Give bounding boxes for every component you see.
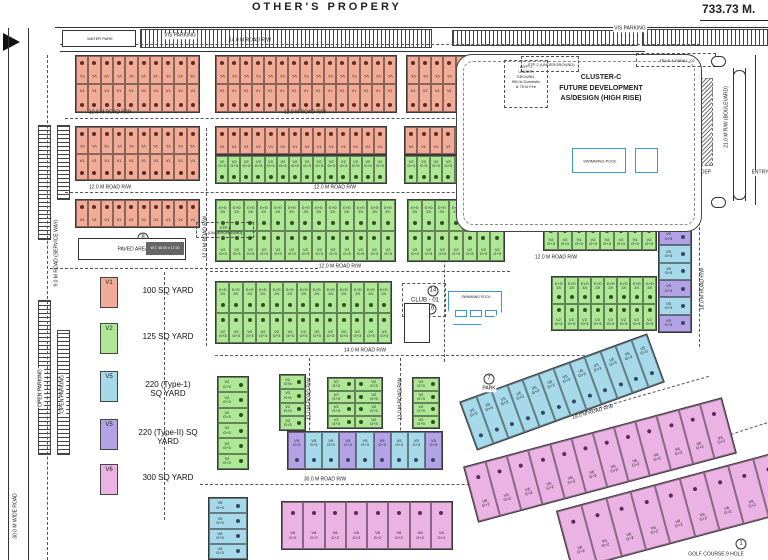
- plot-cell: V1: [324, 84, 336, 112]
- plot-code: V1: [329, 145, 334, 149]
- plot-code: V2G+3: [219, 287, 227, 295]
- plot-cell: V1: [431, 56, 443, 84]
- area-label: VIS PARKING: [613, 26, 647, 32]
- plot-cell: V1: [88, 56, 100, 84]
- plot-code: V2G+3: [223, 426, 231, 434]
- plot-code: V1: [232, 89, 237, 93]
- plot-cell: V1: [113, 84, 125, 112]
- plot-cell: V1: [101, 200, 113, 227]
- plot-marker-icon: [386, 236, 390, 240]
- plot-marker-icon: [92, 103, 96, 107]
- plot-marker-icon: [129, 61, 133, 65]
- plot-marker-icon: [603, 388, 608, 393]
- club-pool-label: SWIMMING POOL: [461, 296, 490, 300]
- plot-code: V6G+2: [652, 453, 662, 463]
- plot-marker-icon: [166, 132, 170, 136]
- plot-marker-icon: [244, 132, 248, 136]
- plot-marker-icon: [431, 382, 435, 386]
- plot-cell: V5G+3: [659, 315, 691, 332]
- plot-block: V6G+2V6G+2V6G+2V6G+2V6G+2V6G+2V6G+2V6G+2: [281, 501, 453, 550]
- plot-cell: V6G+2: [282, 502, 303, 549]
- plot-code: V2G+3: [452, 248, 460, 256]
- plot-cell: V1: [362, 127, 374, 154]
- plot-code: V2G+3: [357, 248, 365, 256]
- plot-marker-icon: [191, 103, 195, 107]
- plot-cell: V5G+3: [659, 263, 691, 280]
- traffic-island-top: [711, 56, 726, 67]
- plot-cell: V2G+3: [229, 282, 242, 313]
- plot-cell: V1: [276, 56, 288, 84]
- plot-code: V2G+3: [302, 205, 310, 213]
- plot-marker-icon: [378, 132, 382, 136]
- plot-code: V1: [232, 74, 237, 78]
- plot-cell: V1: [228, 56, 240, 84]
- plot-code: V2G+3: [561, 238, 569, 246]
- plot-code: V2G+3: [243, 160, 251, 168]
- plot-marker-icon: [280, 103, 284, 107]
- water-tank-dim: W.T. 48.00 x 17.00: [151, 247, 180, 251]
- plot-marker-icon: [422, 132, 426, 136]
- plot-marker-icon: [244, 175, 248, 179]
- plot-block: V5G+3V5G+3V5G+3V5G+3V5G+3V5G+3: [658, 227, 692, 333]
- plot-cell: V2G+3: [578, 304, 591, 331]
- plot-cell: V2G+3: [243, 313, 256, 344]
- plot-marker-icon: [440, 221, 444, 225]
- plot-code: V2G+3: [233, 248, 241, 256]
- plot-code: V6G+2: [673, 447, 683, 457]
- plot-code: V2G+3: [279, 160, 287, 168]
- legend-code: V5: [101, 422, 117, 428]
- stp1-line2: (UNDERGROUND): [197, 230, 253, 235]
- plot-code: V2G+3: [594, 318, 602, 326]
- dimension-line: [700, 20, 768, 21]
- plot-cell: V2G+3: [405, 156, 417, 183]
- plot-code: V1: [117, 74, 122, 78]
- plot-cell: V2G+3: [364, 313, 377, 344]
- plot-marker-icon: [281, 175, 285, 179]
- plot-code: V1: [447, 74, 452, 78]
- plot-cell: V2G+3: [565, 277, 578, 304]
- plot-marker-icon: [329, 458, 333, 462]
- plot-code: V6G+2: [625, 532, 635, 542]
- plot-code: V1: [328, 74, 333, 78]
- plot-code: V2G+3: [417, 393, 425, 401]
- plot-code: V2G+3: [364, 160, 372, 168]
- road-centerline: [65, 192, 510, 193]
- plot-marker-icon: [609, 308, 613, 312]
- plot-cell: V2G+3: [340, 200, 354, 231]
- plot-marker-icon: [556, 405, 561, 410]
- plot-cell: V1: [76, 200, 88, 227]
- plot-code: V1: [423, 74, 428, 78]
- plot-cell: V2G+3: [413, 416, 439, 429]
- plot-code: V1: [220, 74, 225, 78]
- plot-code: V2G+3: [259, 287, 267, 295]
- plot-code: V1: [166, 159, 171, 163]
- plot-code: V1: [352, 74, 357, 78]
- plot-marker-icon: [681, 252, 685, 256]
- plot-cell: V1: [240, 84, 252, 112]
- plot-marker-icon: [347, 420, 351, 424]
- plot-cell: V2G+3: [643, 304, 656, 331]
- plot-code: V2G+3: [274, 248, 282, 256]
- plot-cell: V2G+3: [463, 231, 477, 262]
- plot-marker-icon: [669, 423, 674, 428]
- plot-cell: V2G+3: [270, 282, 283, 313]
- plot-code: V2G+3: [633, 318, 641, 326]
- plot-cell: V5G+3: [391, 432, 408, 469]
- plot-cell: V2G+3: [218, 377, 248, 392]
- plot-marker-icon: [635, 295, 639, 299]
- plot-code: V6G+2: [438, 531, 446, 539]
- plot-marker-icon: [290, 236, 294, 240]
- plot-marker-icon: [179, 103, 183, 107]
- plot-code: V1: [141, 89, 146, 93]
- plot-code: V2G+3: [267, 160, 275, 168]
- plot-cell: V1: [443, 84, 455, 112]
- plot-marker-icon: [347, 407, 351, 411]
- plot-code: V5G+3: [607, 357, 617, 367]
- plot-marker-icon: [288, 318, 292, 322]
- trus-panel-label: TRUS & PANEL -02: [659, 59, 694, 63]
- plot-code: V1: [421, 145, 426, 149]
- plot-cell: V2G+3: [351, 282, 364, 313]
- plot-cell: V1: [174, 154, 186, 181]
- plot-marker-icon: [447, 103, 451, 107]
- plot-cell: V5G+3: [209, 498, 247, 513]
- plot-block: V2G+3V2G+3V2G+3V2G+3V2G+3V2G+3V2G+3V2G+3: [327, 377, 383, 429]
- plot-cell: V1: [419, 84, 431, 112]
- plot-code: V2G+3: [328, 160, 336, 168]
- plot-cell: V1: [138, 154, 150, 181]
- plot-cell: V1: [113, 200, 125, 227]
- plot-cell: V2G+3: [218, 423, 248, 438]
- plot-code: V6G+2: [502, 493, 512, 503]
- plot-marker-icon: [179, 61, 183, 65]
- club-building: [404, 303, 430, 343]
- plot-block: V2G+3V2G+3V2G+3V2G+3: [412, 377, 440, 429]
- legend-label: 100 SQ YARD: [122, 286, 214, 295]
- plot-code: V5G+3: [395, 439, 403, 447]
- plot-cell: V1: [162, 127, 174, 154]
- plot-cell: V1: [125, 200, 137, 227]
- plot-marker-icon: [304, 61, 308, 65]
- plot-code: V2G+3: [645, 238, 653, 246]
- plot-marker-icon: [431, 458, 435, 462]
- plot-marker-icon: [333, 511, 337, 515]
- legend-swatch-v5-3: V5: [100, 419, 118, 450]
- plot-marker-icon: [328, 303, 332, 307]
- plot-cell: V1: [348, 84, 360, 112]
- plot-marker-icon: [179, 132, 183, 136]
- plot-cell: V1: [313, 127, 325, 154]
- legend-code: V6: [101, 467, 117, 473]
- plot-code: V1: [141, 144, 146, 148]
- plot-code: V1: [365, 145, 370, 149]
- plot-code: V5G+3: [623, 351, 633, 361]
- plot-code: V5G+3: [216, 532, 224, 540]
- plot-code: V2G+3: [444, 160, 452, 168]
- plot-cell: V2G+3: [378, 282, 391, 313]
- area-label: ENTRY: [751, 170, 768, 176]
- plot-code: V2G+3: [438, 205, 446, 213]
- plot-marker-icon: [239, 459, 243, 463]
- plot-code: V2G+3: [327, 330, 335, 338]
- plot-code: V6G+2: [747, 499, 757, 509]
- plot-marker-icon: [297, 394, 301, 398]
- plot-marker-icon: [681, 287, 685, 291]
- plot-marker-icon: [269, 132, 273, 136]
- plot-marker-icon: [290, 221, 294, 225]
- plot-code: V1: [341, 145, 346, 149]
- plot-marker-icon: [572, 399, 577, 404]
- plot-code: V2G+3: [223, 442, 231, 450]
- plot-marker-icon: [305, 175, 309, 179]
- plot-cell: V1: [138, 56, 150, 84]
- legend-swatch-v5-2: V5: [100, 371, 118, 402]
- plot-cell: V2G+3: [449, 231, 463, 262]
- plot-code: V6G+2: [631, 458, 641, 468]
- plot-block: V1V1V1V1V1V1V1V1V1V1V1V1V1V1V1V1V1V1V1V1: [75, 126, 200, 181]
- plot-marker-icon: [439, 511, 443, 515]
- plot-marker-icon: [352, 103, 356, 107]
- entry-arrow-icon: [3, 33, 20, 51]
- plot-code: V1: [166, 89, 171, 93]
- plot-cell: V2G+3: [310, 282, 323, 313]
- plot-cell: V1: [162, 200, 174, 227]
- plot-cell: V6G+2: [410, 502, 431, 549]
- plot-marker-icon: [317, 132, 321, 136]
- plot-code: V1: [190, 74, 195, 78]
- road-centerline: [210, 271, 510, 272]
- plot-marker-icon: [220, 175, 224, 179]
- plot-code: V2G+3: [332, 380, 340, 388]
- plot-cell: V1: [337, 127, 349, 154]
- plot-code: V6G+2: [716, 435, 726, 445]
- plot-code: V2G+3: [315, 205, 323, 213]
- plot-cell: V1: [216, 127, 228, 154]
- plot-code: V1: [388, 89, 393, 93]
- plot-code: V1: [316, 89, 321, 93]
- plot-cell: V1: [228, 84, 240, 112]
- plot-marker-icon: [742, 474, 747, 479]
- plot-cell: V1: [252, 56, 264, 84]
- plot-marker-icon: [256, 175, 260, 179]
- plot-marker-icon: [316, 103, 320, 107]
- plot-code: V1: [268, 89, 273, 93]
- keyplan-badge: 7: [484, 374, 495, 385]
- plot-marker-icon: [261, 303, 265, 307]
- plot-marker-icon: [191, 132, 195, 136]
- plot-code: V2G+3: [370, 405, 378, 413]
- plot-cell: V1: [150, 84, 162, 112]
- plot-cell: V2G+3: [552, 277, 565, 304]
- plot-code: V2G+3: [340, 330, 348, 338]
- plot-code: V1: [376, 74, 381, 78]
- plot-cell: V2G+3: [326, 200, 340, 231]
- plot-marker-icon: [256, 132, 260, 136]
- plot-code: V2G+3: [315, 248, 323, 256]
- plot-marker-icon: [372, 221, 376, 225]
- plot-cell: V2G+3: [229, 313, 242, 344]
- plot-code: V6G+2: [649, 525, 659, 535]
- plot-marker-icon: [434, 132, 438, 136]
- plot-block: V1V1V1V1V1V1V1V1V1V1V1V1V1V1V1V1V1V1V1V1…: [215, 55, 397, 113]
- plot-code: V2G+3: [273, 287, 281, 295]
- plot-code: V2G+3: [273, 330, 281, 338]
- plot-code: V2G+3: [288, 248, 296, 256]
- page-title: OTHER'S PROPERY: [252, 1, 402, 13]
- plot-marker-icon: [291, 511, 295, 515]
- plot-cell: V2G+3: [271, 231, 285, 262]
- plot-marker-icon: [305, 132, 309, 136]
- plot-code: V2G+3: [286, 330, 294, 338]
- plot-marker-icon: [541, 410, 546, 415]
- plot-marker-icon: [142, 103, 146, 107]
- plot-marker-icon: [221, 303, 225, 307]
- plot-marker-icon: [80, 61, 84, 65]
- plot-code: V2G+3: [303, 160, 311, 168]
- plot-cell: V5G+3: [209, 529, 247, 544]
- plot-code: V1: [352, 89, 357, 93]
- plot-marker-icon: [648, 295, 652, 299]
- plot-code: V1: [92, 218, 97, 222]
- plot-marker-icon: [317, 236, 321, 240]
- plot-marker-icon: [497, 469, 502, 474]
- plot-cell: V1: [301, 127, 313, 154]
- plot-cell: V2G+3: [228, 156, 240, 183]
- plot-cell: V1: [125, 56, 137, 84]
- plot-cell: V2G+3: [299, 231, 313, 262]
- plot-marker-icon: [359, 395, 363, 399]
- plot-cell: V2G+3: [324, 313, 337, 344]
- plot-cell: V2G+3: [216, 313, 229, 344]
- plot-code: V2G+3: [230, 160, 238, 168]
- plot-cell: V1: [125, 154, 137, 181]
- cluster-c-line1: CLUSTER-C: [540, 73, 662, 84]
- plot-code: V5G+3: [412, 439, 420, 447]
- plot-cell: V1: [113, 154, 125, 181]
- plot-marker-icon: [364, 61, 368, 65]
- plot-marker-icon: [354, 175, 358, 179]
- plot-cell: V1: [374, 127, 386, 154]
- plot-cell: V1: [101, 56, 113, 84]
- plot-code: V2G+3: [232, 330, 240, 338]
- plot-code: V2G+3: [607, 281, 615, 289]
- plot-cell: V2G+3: [280, 416, 305, 430]
- cluster-c-line3: AS/DESIGN (HIGH RISE): [540, 94, 662, 105]
- plot-marker-icon: [519, 464, 524, 469]
- plot-cell: V1: [88, 127, 100, 154]
- plot-cell: V2G+3: [435, 231, 449, 262]
- plot-marker-icon: [446, 175, 450, 179]
- plot-code: V2G+3: [340, 287, 348, 295]
- plot-cell: V2G+3: [312, 200, 326, 231]
- plot-cell: V1: [138, 127, 150, 154]
- plot-code: V2G+3: [223, 411, 231, 419]
- plot-cell: V1: [360, 56, 372, 84]
- plot-code: V5G+3: [665, 284, 673, 292]
- plot-marker-icon: [423, 103, 427, 107]
- plot-marker-icon: [618, 382, 623, 387]
- plot-marker-icon: [409, 132, 413, 136]
- plot-code: V6G+2: [588, 470, 598, 480]
- plot-marker-icon: [281, 132, 285, 136]
- plot-marker-icon: [80, 103, 84, 107]
- plot-code: V1: [280, 145, 285, 149]
- parking-hatch: [38, 125, 51, 240]
- plot-code: V2G+3: [300, 330, 308, 338]
- plot-code: V1: [292, 89, 297, 93]
- plot-marker-icon: [317, 221, 321, 225]
- plot-code: V2G+3: [233, 205, 241, 213]
- plot-code: V1: [280, 74, 285, 78]
- plot-cell: V2G+3: [328, 416, 355, 429]
- plot-cell: V2G+3: [301, 156, 313, 183]
- plot-cell: V2G+3: [354, 231, 368, 262]
- plot-code: V1: [435, 74, 440, 78]
- cluster-pool-small: [635, 148, 658, 173]
- plot-marker-icon: [239, 398, 243, 402]
- plot-code: V1: [328, 89, 333, 93]
- plot-cell: V1: [76, 154, 88, 181]
- plot-cell: V1: [101, 127, 113, 154]
- plot-marker-icon: [369, 303, 373, 307]
- plot-marker-icon: [292, 103, 296, 107]
- plot-marker-icon: [411, 103, 415, 107]
- road-label: 12.0 M ROAD R/W: [535, 255, 577, 261]
- plot-code: V2G+3: [284, 378, 292, 386]
- plot-code: V2G+3: [332, 418, 340, 426]
- plot-cell: V1: [431, 84, 443, 112]
- plot-marker-icon: [315, 303, 319, 307]
- plot-cell: V5G+3: [659, 297, 691, 314]
- plot-marker-icon: [525, 416, 530, 421]
- plot-cell: V1: [125, 127, 137, 154]
- plot-marker-icon: [297, 421, 301, 425]
- plot-marker-icon: [427, 221, 431, 225]
- plot-marker-icon: [634, 376, 639, 381]
- plot-marker-icon: [346, 458, 350, 462]
- plot-code: V1: [80, 218, 85, 222]
- plot-cell: V2G+3: [312, 231, 326, 262]
- plot-cell: V1: [407, 84, 419, 112]
- plot-cell: V2G+3: [374, 156, 386, 183]
- plot-cell: V5G+3: [209, 513, 247, 528]
- plot-marker-icon: [413, 236, 417, 240]
- plot-code: V2G+3: [223, 396, 231, 404]
- plot-code: V2G+3: [259, 330, 267, 338]
- legend-code: V5: [101, 374, 117, 380]
- stp1-text: STP-1 (UNDERGROUND): [197, 225, 253, 235]
- plot-marker-icon: [276, 236, 280, 240]
- plot-code: V5G+3: [561, 374, 571, 384]
- plot-code: V2G+3: [260, 205, 268, 213]
- plot-cell: V5G+3: [356, 432, 373, 469]
- plot-code: V2G+3: [255, 160, 263, 168]
- plot-code: V2G+3: [380, 287, 388, 295]
- plot-marker-icon: [248, 303, 252, 307]
- plot-marker-icon: [236, 534, 240, 538]
- plot-code: V1: [166, 74, 171, 78]
- plot-marker-icon: [268, 103, 272, 107]
- plot-marker-icon: [363, 458, 367, 462]
- plot-marker-icon: [191, 205, 195, 209]
- plot-code: V2G+3: [411, 248, 419, 256]
- plot-code: V6G+2: [600, 539, 610, 549]
- plot-cell: V1: [300, 56, 312, 84]
- plot-code: V2G+3: [631, 238, 639, 246]
